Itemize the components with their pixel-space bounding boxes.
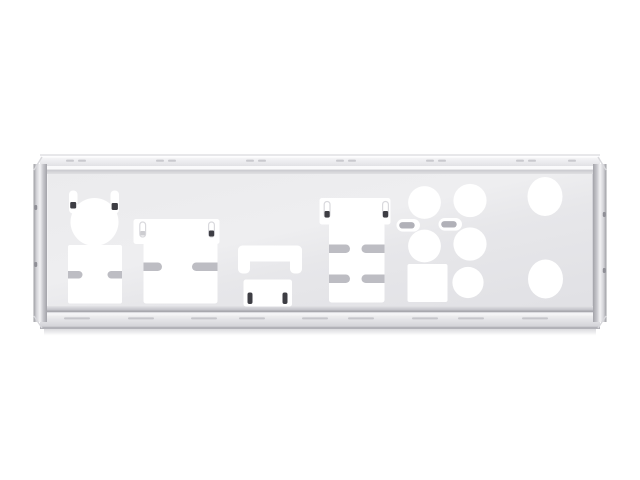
- bottom-flange: [40, 315, 600, 326]
- ps2-port-cutout: [69, 191, 119, 247]
- vga-connector-cutout: [134, 219, 220, 304]
- plate-drop-shadow: [44, 329, 596, 336]
- bottom-fold-shade: [46, 306, 594, 310]
- spdif-square-cutout: [408, 264, 448, 302]
- bottom-dark-line: [40, 310, 600, 312]
- top-lip-strip: [40, 158, 600, 167]
- plate-face: [46, 174, 594, 308]
- top-lip-highlight: [40, 155, 600, 157]
- right-bevel: [593, 164, 607, 322]
- bottom-edge-line: [40, 327, 600, 329]
- bottom-highlight-line: [40, 312, 600, 315]
- io-shield-illustration: [0, 0, 640, 480]
- left-bevel: [34, 164, 48, 322]
- top-fold-highlight: [40, 166, 600, 170]
- bottom-flange-dashes: [64, 317, 548, 319]
- product-photo-io-shield: [0, 0, 640, 480]
- ear-fold-light-mark: [140, 231, 145, 236]
